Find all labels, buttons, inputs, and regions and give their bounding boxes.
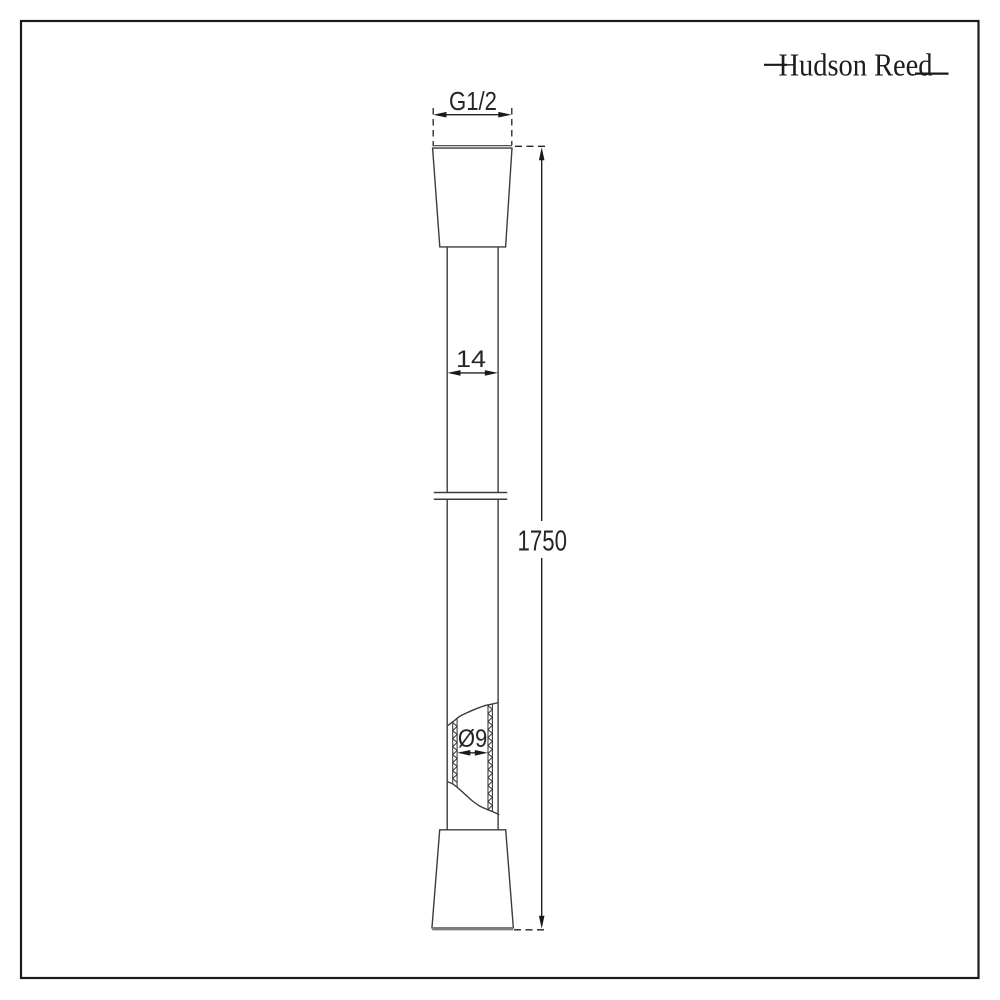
svg-text:G1/2: G1/2	[449, 88, 497, 116]
svg-text:1750: 1750	[518, 525, 568, 557]
svg-text:14: 14	[456, 346, 486, 373]
svg-text:Hudson Reed: Hudson Reed	[779, 48, 933, 83]
svg-text:Ø9: Ø9	[458, 725, 488, 753]
